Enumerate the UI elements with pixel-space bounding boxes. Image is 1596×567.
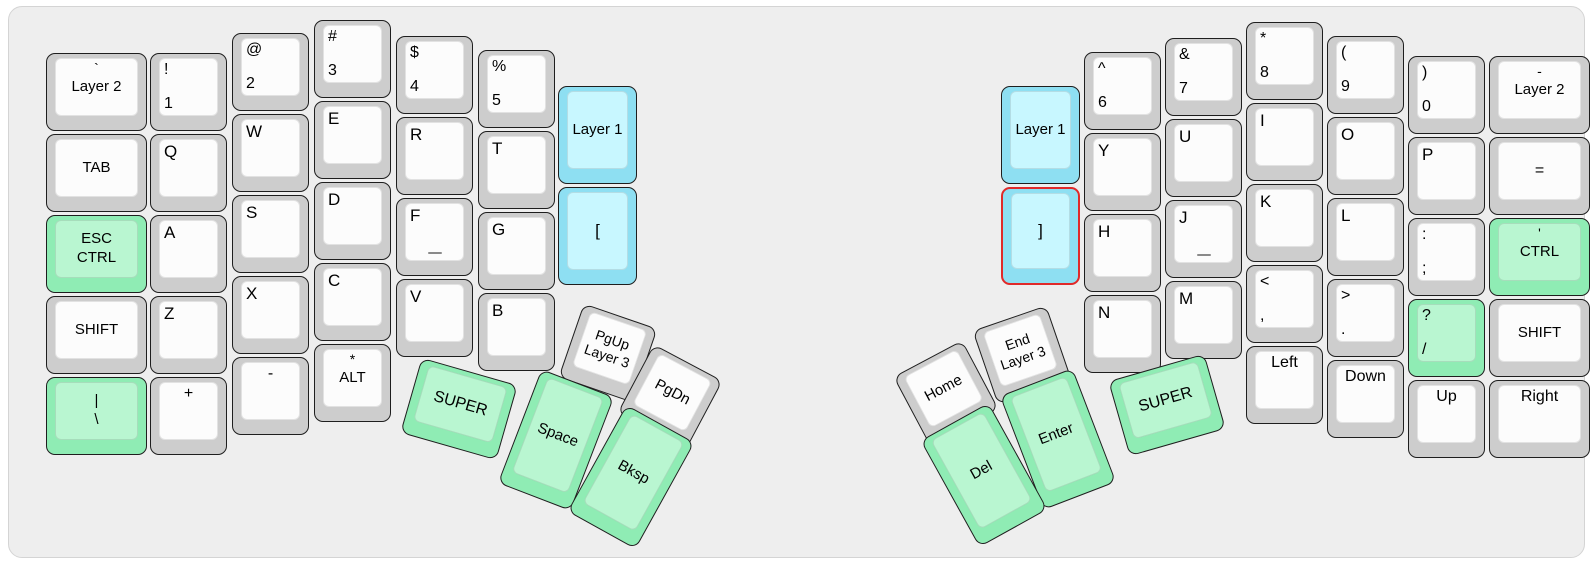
key-exclam-1-cap: !1 bbox=[159, 58, 218, 116]
key-caret-6-label: 6 bbox=[1098, 93, 1107, 113]
key-esc-ctrl-label: ESC CTRL bbox=[56, 221, 137, 277]
key-star-8[interactable]: *8 bbox=[1246, 22, 1323, 100]
key-e[interactable]: E bbox=[314, 101, 391, 179]
key-l[interactable]: L bbox=[1327, 198, 1404, 276]
key-layer1-right-label: Layer 1 bbox=[1011, 92, 1070, 168]
key-caret-6-cap: ^6 bbox=[1093, 57, 1152, 115]
key-star-alt-label: ALT bbox=[324, 350, 381, 406]
key-dollar-4[interactable]: $4 bbox=[396, 36, 473, 114]
key-w[interactable]: W bbox=[232, 114, 309, 192]
key-right-cap: Right bbox=[1498, 385, 1581, 443]
key-z-cap: Z bbox=[159, 301, 218, 359]
key-percent-5-cap: %5 bbox=[487, 55, 546, 113]
key-exclam-1-label: ! bbox=[164, 60, 168, 80]
key-equals[interactable]: = bbox=[1489, 137, 1590, 215]
key-h[interactable]: H bbox=[1084, 214, 1161, 292]
key-paren-9-label: 9 bbox=[1341, 77, 1350, 97]
key-e-cap: E bbox=[323, 106, 382, 164]
key-l-cap: L bbox=[1336, 203, 1395, 261]
key-right[interactable]: Right bbox=[1489, 380, 1590, 458]
key-hash-3-label: 3 bbox=[328, 61, 337, 81]
key-y[interactable]: Y bbox=[1084, 133, 1161, 211]
key-lt-comma-label: < bbox=[1260, 272, 1269, 292]
key-t-label: T bbox=[492, 138, 502, 159]
key-tab-label: TAB bbox=[56, 140, 137, 196]
key-n-cap: N bbox=[1093, 300, 1152, 358]
key-m-label: M bbox=[1179, 288, 1193, 309]
key-super-left-cap: SUPER bbox=[413, 365, 508, 443]
keyboard-board: `Layer 2TABESC CTRLSHIFT| \!1QAZ+@2WSX-#… bbox=[8, 6, 1585, 558]
key-minus-layer2-label: Layer 2 bbox=[1499, 62, 1580, 118]
key-i-label: I bbox=[1260, 110, 1265, 131]
key-b[interactable]: B bbox=[478, 293, 555, 371]
key-m-cap: M bbox=[1174, 286, 1233, 344]
key-a[interactable]: A bbox=[150, 215, 227, 293]
key-minus[interactable]: - bbox=[232, 357, 309, 435]
key-o-cap: O bbox=[1336, 122, 1395, 180]
key-super-left-label: SUPER bbox=[414, 366, 506, 442]
key-star-8-cap: *8 bbox=[1255, 27, 1314, 85]
key-rbracket[interactable]: ] bbox=[1001, 187, 1080, 285]
key-down-cap: Down bbox=[1336, 365, 1395, 423]
key-u-cap: U bbox=[1174, 124, 1233, 182]
key-d[interactable]: D bbox=[314, 182, 391, 260]
key-super-right-label: SUPER bbox=[1119, 362, 1211, 438]
key-i[interactable]: I bbox=[1246, 103, 1323, 181]
key-pipe-backslash[interactable]: | \ bbox=[46, 377, 147, 455]
key-a-label: A bbox=[164, 222, 175, 243]
key-quote-ctrl-cap: 'CTRL bbox=[1498, 223, 1581, 281]
key-t[interactable]: T bbox=[478, 131, 555, 209]
key-d-label: D bbox=[328, 189, 340, 210]
key-percent-5-label: 5 bbox=[492, 91, 501, 111]
key-equals-cap: = bbox=[1498, 142, 1581, 200]
key-plus-label: + bbox=[160, 384, 217, 404]
key-t-cap: T bbox=[487, 136, 546, 194]
key-dollar-4-label: 4 bbox=[410, 77, 419, 97]
key-rbracket-cap: ] bbox=[1011, 193, 1070, 269]
key-amp-7[interactable]: &7 bbox=[1165, 38, 1242, 116]
key-percent-5[interactable]: %5 bbox=[478, 50, 555, 128]
key-layer1-left[interactable]: Layer 1 bbox=[558, 86, 637, 184]
key-question-slash-cap: ?/ bbox=[1417, 304, 1476, 362]
key-up-cap: Up bbox=[1417, 385, 1476, 443]
key-pipe-backslash-cap: | \ bbox=[55, 382, 138, 440]
key-pgup-layer3-label: PgUp Layer 3 bbox=[573, 312, 646, 384]
key-left-label: Left bbox=[1256, 353, 1313, 373]
key-layer1-left-cap: Layer 1 bbox=[567, 91, 628, 169]
key-a-cap: A bbox=[159, 220, 218, 278]
key-percent-5-label: % bbox=[492, 57, 506, 77]
key-caret-6-label: ^ bbox=[1098, 59, 1106, 79]
key-layer1-right[interactable]: Layer 1 bbox=[1001, 86, 1080, 184]
key-x-cap: X bbox=[241, 281, 300, 339]
key-gt-period[interactable]: >. bbox=[1327, 279, 1404, 357]
key-question-slash-label: / bbox=[1422, 340, 1426, 360]
key-colon-semicolon-label: : bbox=[1422, 225, 1426, 245]
key-colon-semicolon[interactable]: :; bbox=[1408, 218, 1485, 296]
key-paren-0-cap: )0 bbox=[1417, 61, 1476, 119]
key-plus[interactable]: + bbox=[150, 377, 227, 455]
key-w-label: W bbox=[246, 121, 262, 142]
key-f-cap: F bbox=[405, 203, 464, 261]
key-caret-6[interactable]: ^6 bbox=[1084, 52, 1161, 130]
key-paren-9-label: ( bbox=[1341, 43, 1346, 63]
key-equals-label: = bbox=[1499, 143, 1580, 199]
key-q[interactable]: Q bbox=[150, 134, 227, 212]
key-g-label: G bbox=[492, 219, 505, 240]
key-c-label: C bbox=[328, 270, 340, 291]
key-v-cap: V bbox=[405, 284, 464, 342]
key-quote-ctrl-label: CTRL bbox=[1499, 224, 1580, 280]
key-i-cap: I bbox=[1255, 108, 1314, 166]
key-exclam-1-label: 1 bbox=[164, 94, 173, 114]
key-lt-comma-label: , bbox=[1260, 306, 1264, 326]
key-n[interactable]: N bbox=[1084, 295, 1161, 373]
key-paren-0[interactable]: )0 bbox=[1408, 56, 1485, 134]
key-tab[interactable]: TAB bbox=[46, 134, 147, 212]
key-down-label: Down bbox=[1337, 367, 1394, 387]
key-f-homing-bar bbox=[428, 252, 442, 255]
key-p-cap: P bbox=[1417, 142, 1476, 200]
key-r-cap: R bbox=[405, 122, 464, 180]
key-shift-right-label: SHIFT bbox=[1499, 305, 1580, 361]
key-at-2-cap: @2 bbox=[241, 38, 300, 96]
key-end-layer3-label: End Layer 3 bbox=[984, 314, 1057, 386]
key-backtick-layer2-cap: `Layer 2 bbox=[55, 58, 138, 116]
key-s-cap: S bbox=[241, 200, 300, 258]
key-o[interactable]: O bbox=[1327, 117, 1404, 195]
key-shift-left-cap: SHIFT bbox=[55, 301, 138, 359]
key-s-label: S bbox=[246, 202, 257, 223]
key-esc-ctrl-cap: ESC CTRL bbox=[55, 220, 138, 278]
key-amp-7-label: 7 bbox=[1179, 79, 1188, 99]
key-backtick-layer2[interactable]: `Layer 2 bbox=[46, 53, 147, 131]
key-b-label: B bbox=[492, 300, 503, 321]
key-minus-layer2-cap: -Layer 2 bbox=[1498, 61, 1581, 119]
key-k-label: K bbox=[1260, 191, 1271, 212]
key-c[interactable]: C bbox=[314, 263, 391, 341]
key-pgup-layer3-cap: PgUp Layer 3 bbox=[572, 311, 648, 385]
key-l-label: L bbox=[1341, 205, 1350, 226]
key-p[interactable]: P bbox=[1408, 137, 1485, 215]
key-super-left[interactable]: SUPER bbox=[400, 358, 518, 461]
key-backtick-layer2-label: Layer 2 bbox=[56, 59, 137, 115]
key-lt-comma-cap: <, bbox=[1255, 270, 1314, 328]
key-j[interactable]: J bbox=[1165, 200, 1242, 278]
key-esc-ctrl[interactable]: ESC CTRL bbox=[46, 215, 147, 293]
key-lbracket-cap: [ bbox=[567, 192, 628, 270]
key-minus-cap: - bbox=[241, 362, 300, 420]
key-w-cap: W bbox=[241, 119, 300, 177]
key-q-label: Q bbox=[164, 141, 177, 162]
key-b-cap: B bbox=[487, 298, 546, 356]
key-u[interactable]: U bbox=[1165, 119, 1242, 197]
key-gt-period-cap: >. bbox=[1336, 284, 1395, 342]
key-g[interactable]: G bbox=[478, 212, 555, 290]
key-x[interactable]: X bbox=[232, 276, 309, 354]
key-f[interactable]: F bbox=[396, 198, 473, 276]
key-s[interactable]: S bbox=[232, 195, 309, 273]
key-star-alt-cap: *ALT bbox=[323, 349, 382, 407]
key-question-slash-label: ? bbox=[1422, 306, 1431, 326]
key-up[interactable]: Up bbox=[1408, 380, 1485, 458]
key-dollar-4-cap: $4 bbox=[405, 41, 464, 99]
key-paren-9[interactable]: (9 bbox=[1327, 36, 1404, 114]
key-r[interactable]: R bbox=[396, 117, 473, 195]
key-minus-layer2[interactable]: -Layer 2 bbox=[1489, 56, 1590, 134]
key-colon-semicolon-label: ; bbox=[1422, 259, 1426, 279]
key-j-cap: J bbox=[1174, 205, 1233, 263]
key-left[interactable]: Left bbox=[1246, 346, 1323, 424]
key-exclam-1[interactable]: !1 bbox=[150, 53, 227, 131]
key-d-cap: D bbox=[323, 187, 382, 245]
key-pipe-backslash-label: | \ bbox=[56, 383, 137, 439]
key-shift-left[interactable]: SHIFT bbox=[46, 296, 147, 374]
key-f-label: F bbox=[410, 205, 420, 226]
key-quote-ctrl[interactable]: 'CTRL bbox=[1489, 218, 1590, 296]
key-plus-cap: + bbox=[159, 382, 218, 440]
key-hash-3-cap: #3 bbox=[323, 25, 382, 83]
key-z-label: Z bbox=[164, 303, 174, 324]
key-v-label: V bbox=[410, 286, 421, 307]
key-r-label: R bbox=[410, 124, 422, 145]
key-e-label: E bbox=[328, 108, 339, 129]
key-end-layer3-cap: End Layer 3 bbox=[983, 313, 1059, 387]
key-n-label: N bbox=[1098, 302, 1110, 323]
key-dollar-4-label: $ bbox=[410, 43, 419, 63]
key-h-label: H bbox=[1098, 221, 1110, 242]
key-p-label: P bbox=[1422, 144, 1433, 165]
key-o-label: O bbox=[1341, 124, 1354, 145]
key-j-label: J bbox=[1179, 207, 1188, 228]
key-q-cap: Q bbox=[159, 139, 218, 197]
key-star-alt[interactable]: *ALT bbox=[314, 344, 391, 422]
key-up-label: Up bbox=[1418, 387, 1475, 407]
key-h-cap: H bbox=[1093, 219, 1152, 277]
key-hash-3-label: # bbox=[328, 27, 337, 47]
key-colon-semicolon-cap: :; bbox=[1417, 223, 1476, 281]
key-m[interactable]: M bbox=[1165, 281, 1242, 359]
key-layer1-left-label: Layer 1 bbox=[568, 92, 627, 168]
key-at-2[interactable]: @2 bbox=[232, 33, 309, 111]
key-j-homing-bar bbox=[1197, 254, 1211, 257]
key-shift-right-cap: SHIFT bbox=[1498, 304, 1581, 362]
key-amp-7-label: & bbox=[1179, 45, 1190, 65]
key-tab-cap: TAB bbox=[55, 139, 138, 197]
key-z[interactable]: Z bbox=[150, 296, 227, 374]
key-question-slash[interactable]: ?/ bbox=[1408, 299, 1485, 377]
key-amp-7-cap: &7 bbox=[1174, 43, 1233, 101]
key-at-2-label: @ bbox=[246, 40, 262, 60]
key-y-label: Y bbox=[1098, 140, 1109, 161]
key-left-cap: Left bbox=[1255, 351, 1314, 409]
key-at-2-label: 2 bbox=[246, 74, 255, 94]
key-u-label: U bbox=[1179, 126, 1191, 147]
keys-layer: `Layer 2TABESC CTRLSHIFT| \!1QAZ+@2WSX-#… bbox=[9, 7, 1584, 557]
key-right-label: Right bbox=[1499, 387, 1580, 407]
key-star-8-label: * bbox=[1260, 29, 1266, 49]
key-lbracket[interactable]: [ bbox=[558, 187, 637, 285]
key-hash-3[interactable]: #3 bbox=[314, 20, 391, 98]
key-shift-right[interactable]: SHIFT bbox=[1489, 299, 1590, 377]
key-paren-0-label: ) bbox=[1422, 63, 1427, 83]
page: `Layer 2TABESC CTRLSHIFT| \!1QAZ+@2WSX-#… bbox=[0, 0, 1596, 567]
key-paren-0-label: 0 bbox=[1422, 97, 1431, 117]
key-k[interactable]: K bbox=[1246, 184, 1323, 262]
key-v[interactable]: V bbox=[396, 279, 473, 357]
key-star-8-label: 8 bbox=[1260, 63, 1269, 83]
key-shift-left-label: SHIFT bbox=[56, 302, 137, 358]
key-x-label: X bbox=[246, 283, 257, 304]
key-rbracket-label: ] bbox=[1012, 194, 1069, 268]
key-layer1-right-cap: Layer 1 bbox=[1010, 91, 1071, 169]
key-paren-9-cap: (9 bbox=[1336, 41, 1395, 99]
key-gt-period-label: . bbox=[1341, 320, 1345, 340]
key-down[interactable]: Down bbox=[1327, 360, 1404, 438]
key-lt-comma[interactable]: <, bbox=[1246, 265, 1323, 343]
key-k-cap: K bbox=[1255, 189, 1314, 247]
key-minus-label: - bbox=[242, 364, 299, 384]
key-gt-period-label: > bbox=[1341, 286, 1350, 306]
key-lbracket-label: [ bbox=[568, 193, 627, 269]
key-y-cap: Y bbox=[1093, 138, 1152, 196]
key-g-cap: G bbox=[487, 217, 546, 275]
key-c-cap: C bbox=[323, 268, 382, 326]
